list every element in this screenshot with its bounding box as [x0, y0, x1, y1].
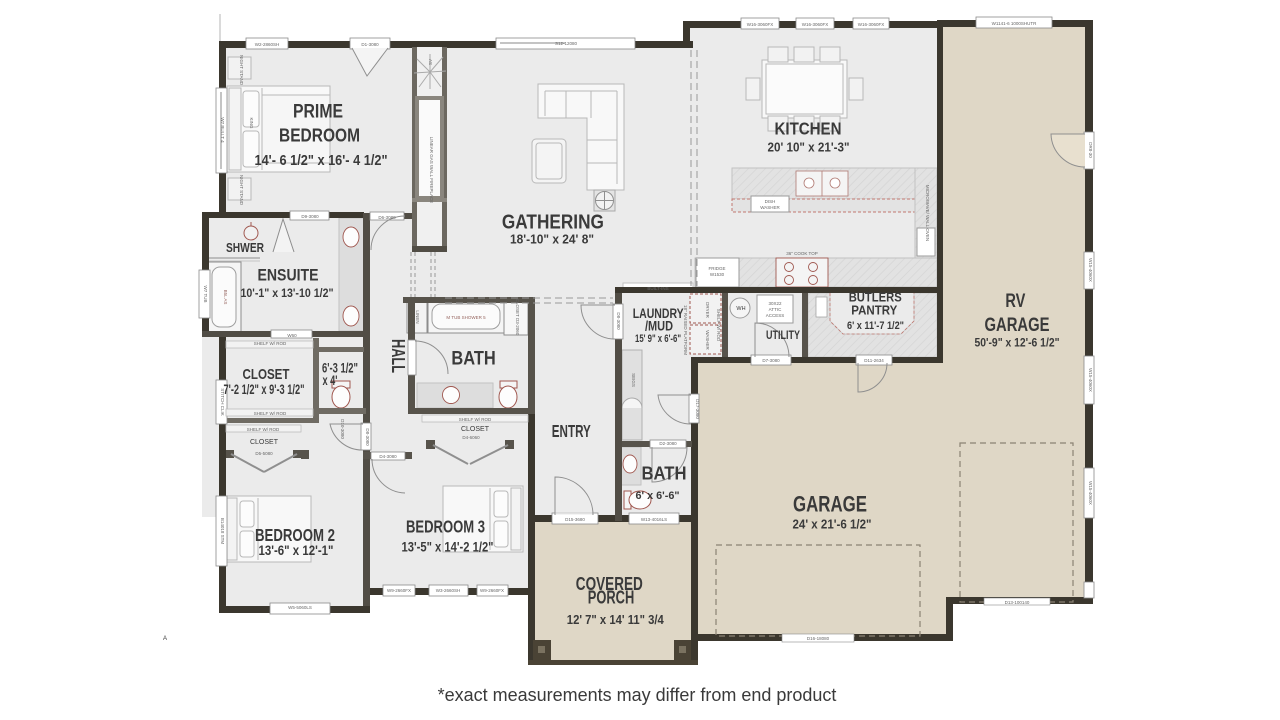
svg-text:CLOSET D3-2060: CLOSET D3-2060 — [515, 299, 520, 336]
svg-text:ACCESS: ACCESS — [766, 313, 785, 318]
svg-text:WH: WH — [736, 306, 745, 312]
svg-text:WASHER: WASHER — [760, 205, 780, 210]
svg-text:W9-2660FX: W9-2660FX — [480, 588, 504, 593]
svg-text:UTILITY: UTILITY — [766, 330, 800, 342]
svg-text:KING: KING — [249, 117, 254, 129]
svg-text:D13-100140: D13-100140 — [1005, 600, 1030, 605]
svg-text:D7-3080: D7-3080 — [762, 358, 780, 363]
svg-text:ENTRY: ENTRY — [552, 421, 591, 441]
svg-text:SHELF W/ ROD: SHELF W/ ROD — [459, 417, 492, 422]
svg-text:DR8-30: DR8-30 — [1088, 142, 1093, 158]
svg-text:7'-2 1/2" x 9'-3 1/2": 7'-2 1/2" x 9'-3 1/2" — [224, 382, 305, 397]
svg-text:W16-3060FX: W16-3060FX — [858, 22, 885, 27]
svg-text:NIGHT STAND: NIGHT STAND — [239, 55, 244, 86]
svg-text:PORCH: PORCH — [588, 587, 635, 607]
svg-text:BUILT-INS: BUILT-INS — [647, 286, 668, 291]
svg-text:GATHERING: GATHERING — [502, 211, 604, 233]
svg-text:BEDROOM 3: BEDROOM 3 — [406, 517, 485, 537]
svg-text:W60: W60 — [287, 333, 297, 338]
svg-text:24' x 21'-6 1/2": 24' x 21'-6 1/2" — [793, 517, 872, 532]
svg-text:W9-2660FX: W9-2660FX — [387, 588, 411, 593]
svg-text:SHELF W/ ROD: SHELF W/ ROD — [716, 309, 721, 342]
svg-text:D11-2634: D11-2634 — [864, 358, 884, 363]
svg-text:PANTRY: PANTRY — [851, 303, 897, 318]
svg-text:ATTIC: ATTIC — [769, 307, 782, 312]
svg-text:GARAGE: GARAGE — [985, 314, 1050, 336]
svg-text:ENSUITE: ENSUITE — [258, 266, 319, 285]
svg-text:BEDROOM: BEDROOM — [279, 125, 360, 146]
svg-text:14'- 6 1/2" x 16'- 4 1/2": 14'- 6 1/2" x 16'- 4 1/2" — [255, 152, 388, 169]
svg-text:SHELF W/ ROD: SHELF W/ ROD — [247, 427, 280, 432]
svg-text:6' x 6'-6": 6' x 6'-6" — [636, 490, 680, 502]
svg-text:FRIDGE: FRIDGE — [708, 266, 725, 271]
svg-text:DRYER: DRYER — [705, 302, 710, 318]
svg-text:B14018 STM: B14018 STM — [220, 518, 225, 545]
svg-text:SEIGS: SEIGS — [631, 373, 636, 387]
svg-text:SHELF W/ ROD: SHELF W/ ROD — [254, 341, 287, 346]
svg-text:36" COOK TOP: 36" COOK TOP — [786, 251, 817, 256]
svg-text:13'-5" x 14'-2 1/2": 13'-5" x 14'-2 1/2" — [402, 540, 494, 555]
svg-text:15' 9" x 6'-6": 15' 9" x 6'-6" — [635, 333, 681, 345]
svg-text:x 4': x 4' — [323, 373, 338, 388]
svg-text:/MUD: /MUD — [645, 319, 673, 334]
svg-text:6' x 11'-7 1/2": 6' x 11'-7 1/2" — [847, 320, 904, 332]
svg-text:GARAGE: GARAGE — [793, 492, 867, 517]
svg-text:D1-3080: D1-3080 — [361, 42, 379, 47]
svg-text:18" RAISED PLATFORM: 18" RAISED PLATFORM — [683, 305, 688, 355]
svg-text:W16-3060FX: W16-3060FX — [747, 22, 774, 27]
svg-text:AS: AS — [428, 59, 433, 65]
svg-text:50'-9" x 12'-6 1/2": 50'-9" x 12'-6 1/2" — [975, 335, 1060, 349]
svg-text:CLOSET: CLOSET — [461, 426, 490, 433]
svg-text:D8-3080: D8-3080 — [365, 428, 370, 446]
svg-text:12' 7" x 14' 11" 3/4: 12' 7" x 14' 11" 3/4 — [567, 612, 665, 627]
svg-text:D10-3080: D10-3080 — [340, 419, 345, 439]
svg-text:SHELF W/ ROD: SHELF W/ ROD — [254, 411, 287, 416]
svg-text:KITCHEN: KITCHEN — [775, 119, 842, 139]
svg-text:S12-12080: S12-12080 — [555, 41, 578, 46]
svg-text:SHWER: SHWER — [226, 241, 264, 255]
svg-text:W13-4016LS: W13-4016LS — [641, 517, 667, 522]
svg-text:WASHER: WASHER — [705, 330, 710, 350]
svg-text:W5-5060LS: W5-5060LS — [288, 605, 312, 610]
svg-text:D15-3680: D15-3680 — [565, 517, 585, 522]
svg-text:CLOSET: CLOSET — [243, 366, 290, 383]
svg-text:20' 10" x 21'-3": 20' 10" x 21'-3" — [768, 140, 850, 155]
svg-text:W1530: W1530 — [710, 272, 725, 277]
svg-text:RV: RV — [1005, 291, 1025, 312]
svg-text:W7 TUB: W7 TUB — [203, 286, 208, 303]
svg-text:10'-1" x 13'-10 1/2": 10'-1" x 13'-10 1/2" — [241, 286, 334, 300]
svg-text:13'-6" x 12'-1": 13'-6" x 12'-1" — [259, 543, 334, 558]
svg-text:BEDROOM 2: BEDROOM 2 — [255, 525, 335, 545]
svg-text:B5L AS: B5L AS — [223, 290, 228, 305]
svg-text:DISH: DISH — [765, 199, 776, 204]
svg-text:BATH: BATH — [642, 464, 687, 484]
svg-text:W15-4060X: W15-4060X — [1088, 258, 1093, 282]
svg-text:D6-3080: D6-3080 — [378, 215, 396, 220]
svg-text:LINEAR GAS WALL FIREPLACE: LINEAR GAS WALL FIREPLACE — [429, 137, 434, 203]
svg-text:*exact measurements may differ: *exact measurements may differ from end … — [438, 685, 837, 705]
svg-text:MICROWAVE/ WALL OVEN: MICROWAVE/ WALL OVEN — [925, 185, 930, 241]
svg-text:HALL: HALL — [388, 339, 408, 373]
svg-text:D5-5080: D5-5080 — [255, 451, 273, 456]
svg-text:D4-6060: D4-6060 — [462, 435, 480, 440]
svg-text:D16-18080: D16-18080 — [807, 636, 830, 641]
svg-text:PRIME: PRIME — [293, 101, 343, 123]
svg-text:D2-3080: D2-3080 — [659, 441, 677, 446]
svg-text:D17-3080: D17-3080 — [695, 399, 700, 419]
svg-text:W1141-6 1000SHUTR: W1141-6 1000SHUTR — [992, 21, 1037, 26]
svg-text:BATH: BATH — [451, 349, 495, 370]
svg-text:W3-2660SH: W3-2660SH — [436, 588, 461, 593]
svg-text:W15-4060X: W15-4060X — [1088, 481, 1093, 505]
svg-text:STITCH CLIK: STITCH CLIK — [220, 388, 225, 416]
svg-text:D4-3080: D4-3080 — [379, 454, 397, 459]
svg-text:D9-3080: D9-3080 — [301, 214, 319, 219]
svg-text:18'-10" x 24' 8": 18'-10" x 24' 8" — [510, 231, 594, 246]
svg-text:W2-2860SH: W2-2860SH — [255, 42, 280, 47]
svg-text:M TUB SHOWER 5: M TUB SHOWER 5 — [446, 315, 486, 320]
svg-text:A: A — [163, 636, 167, 642]
svg-text:W16-3060FX: W16-3060FX — [802, 22, 829, 27]
svg-text:LINEN: LINEN — [415, 310, 420, 323]
svg-text:W7 BULLT 4: W7 BULLT 4 — [220, 117, 225, 143]
svg-text:30X22: 30X22 — [768, 301, 782, 306]
svg-text:CLOSET: CLOSET — [250, 439, 279, 446]
svg-text:W15-4060X: W15-4060X — [1088, 368, 1093, 392]
svg-text:NIGHT STAND: NIGHT STAND — [239, 175, 244, 206]
svg-text:D8-3080: D8-3080 — [616, 312, 621, 330]
